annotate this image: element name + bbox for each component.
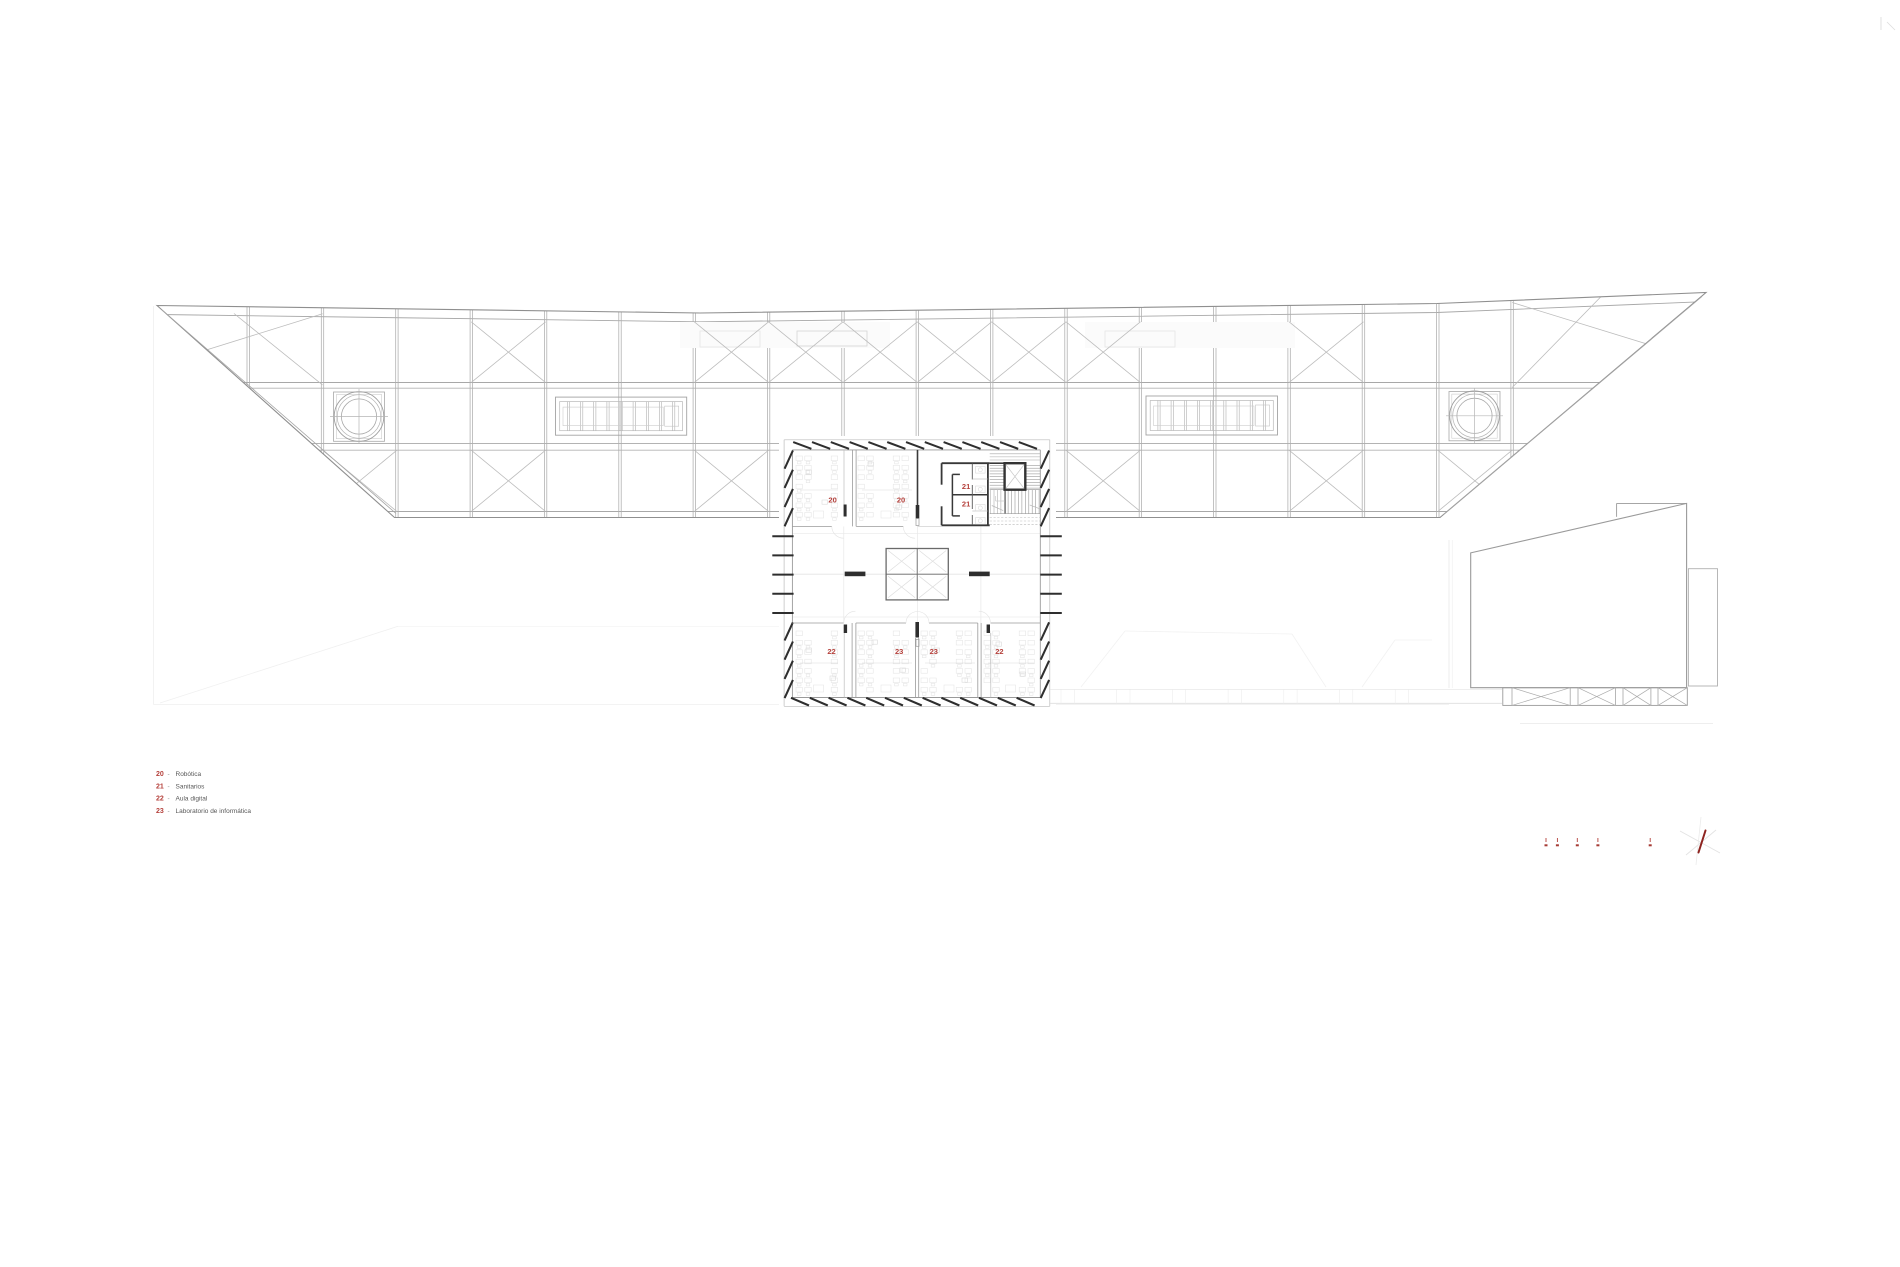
svg-text:Sanitarios: Sanitarios <box>176 783 206 790</box>
svg-text:20: 20 <box>897 496 905 505</box>
svg-text:23: 23 <box>930 647 938 656</box>
svg-text:23: 23 <box>156 808 164 815</box>
svg-text:22: 22 <box>156 796 164 803</box>
svg-text:23: 23 <box>895 647 903 656</box>
svg-text:20: 20 <box>156 771 164 778</box>
svg-text:-: - <box>168 771 170 778</box>
svg-text:21: 21 <box>962 500 970 509</box>
svg-text:Robótica: Robótica <box>176 771 202 778</box>
svg-text:21: 21 <box>156 783 164 790</box>
svg-text:Aula digital: Aula digital <box>176 796 208 803</box>
svg-text:-: - <box>168 808 170 815</box>
svg-text:Laboratorio de informática: Laboratorio de informática <box>176 808 252 815</box>
svg-text:-: - <box>168 783 170 790</box>
svg-text:-: - <box>168 796 170 803</box>
svg-text:21: 21 <box>962 482 970 491</box>
svg-text:22: 22 <box>995 647 1003 656</box>
svg-text:20: 20 <box>828 496 836 505</box>
svg-text:22: 22 <box>827 647 835 656</box>
